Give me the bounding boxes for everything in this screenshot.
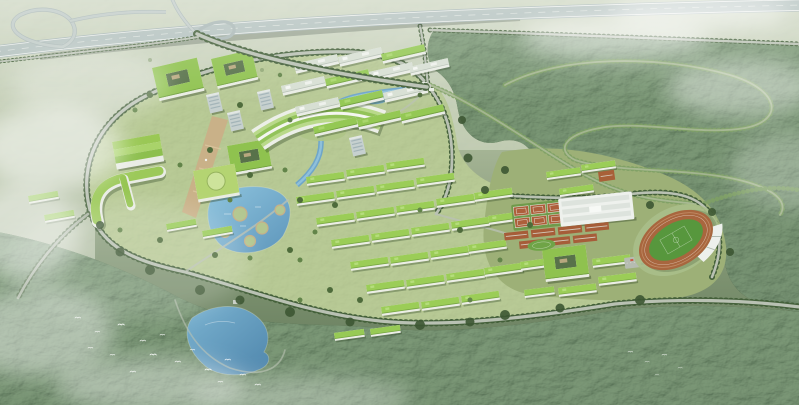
scene-canvas: [0, 0, 799, 405]
campus-aerial-rendering: [0, 0, 799, 405]
tennis-courts: [511, 200, 565, 231]
courtyard-building: [542, 244, 591, 284]
atmospheric-haze: [0, 0, 799, 110]
